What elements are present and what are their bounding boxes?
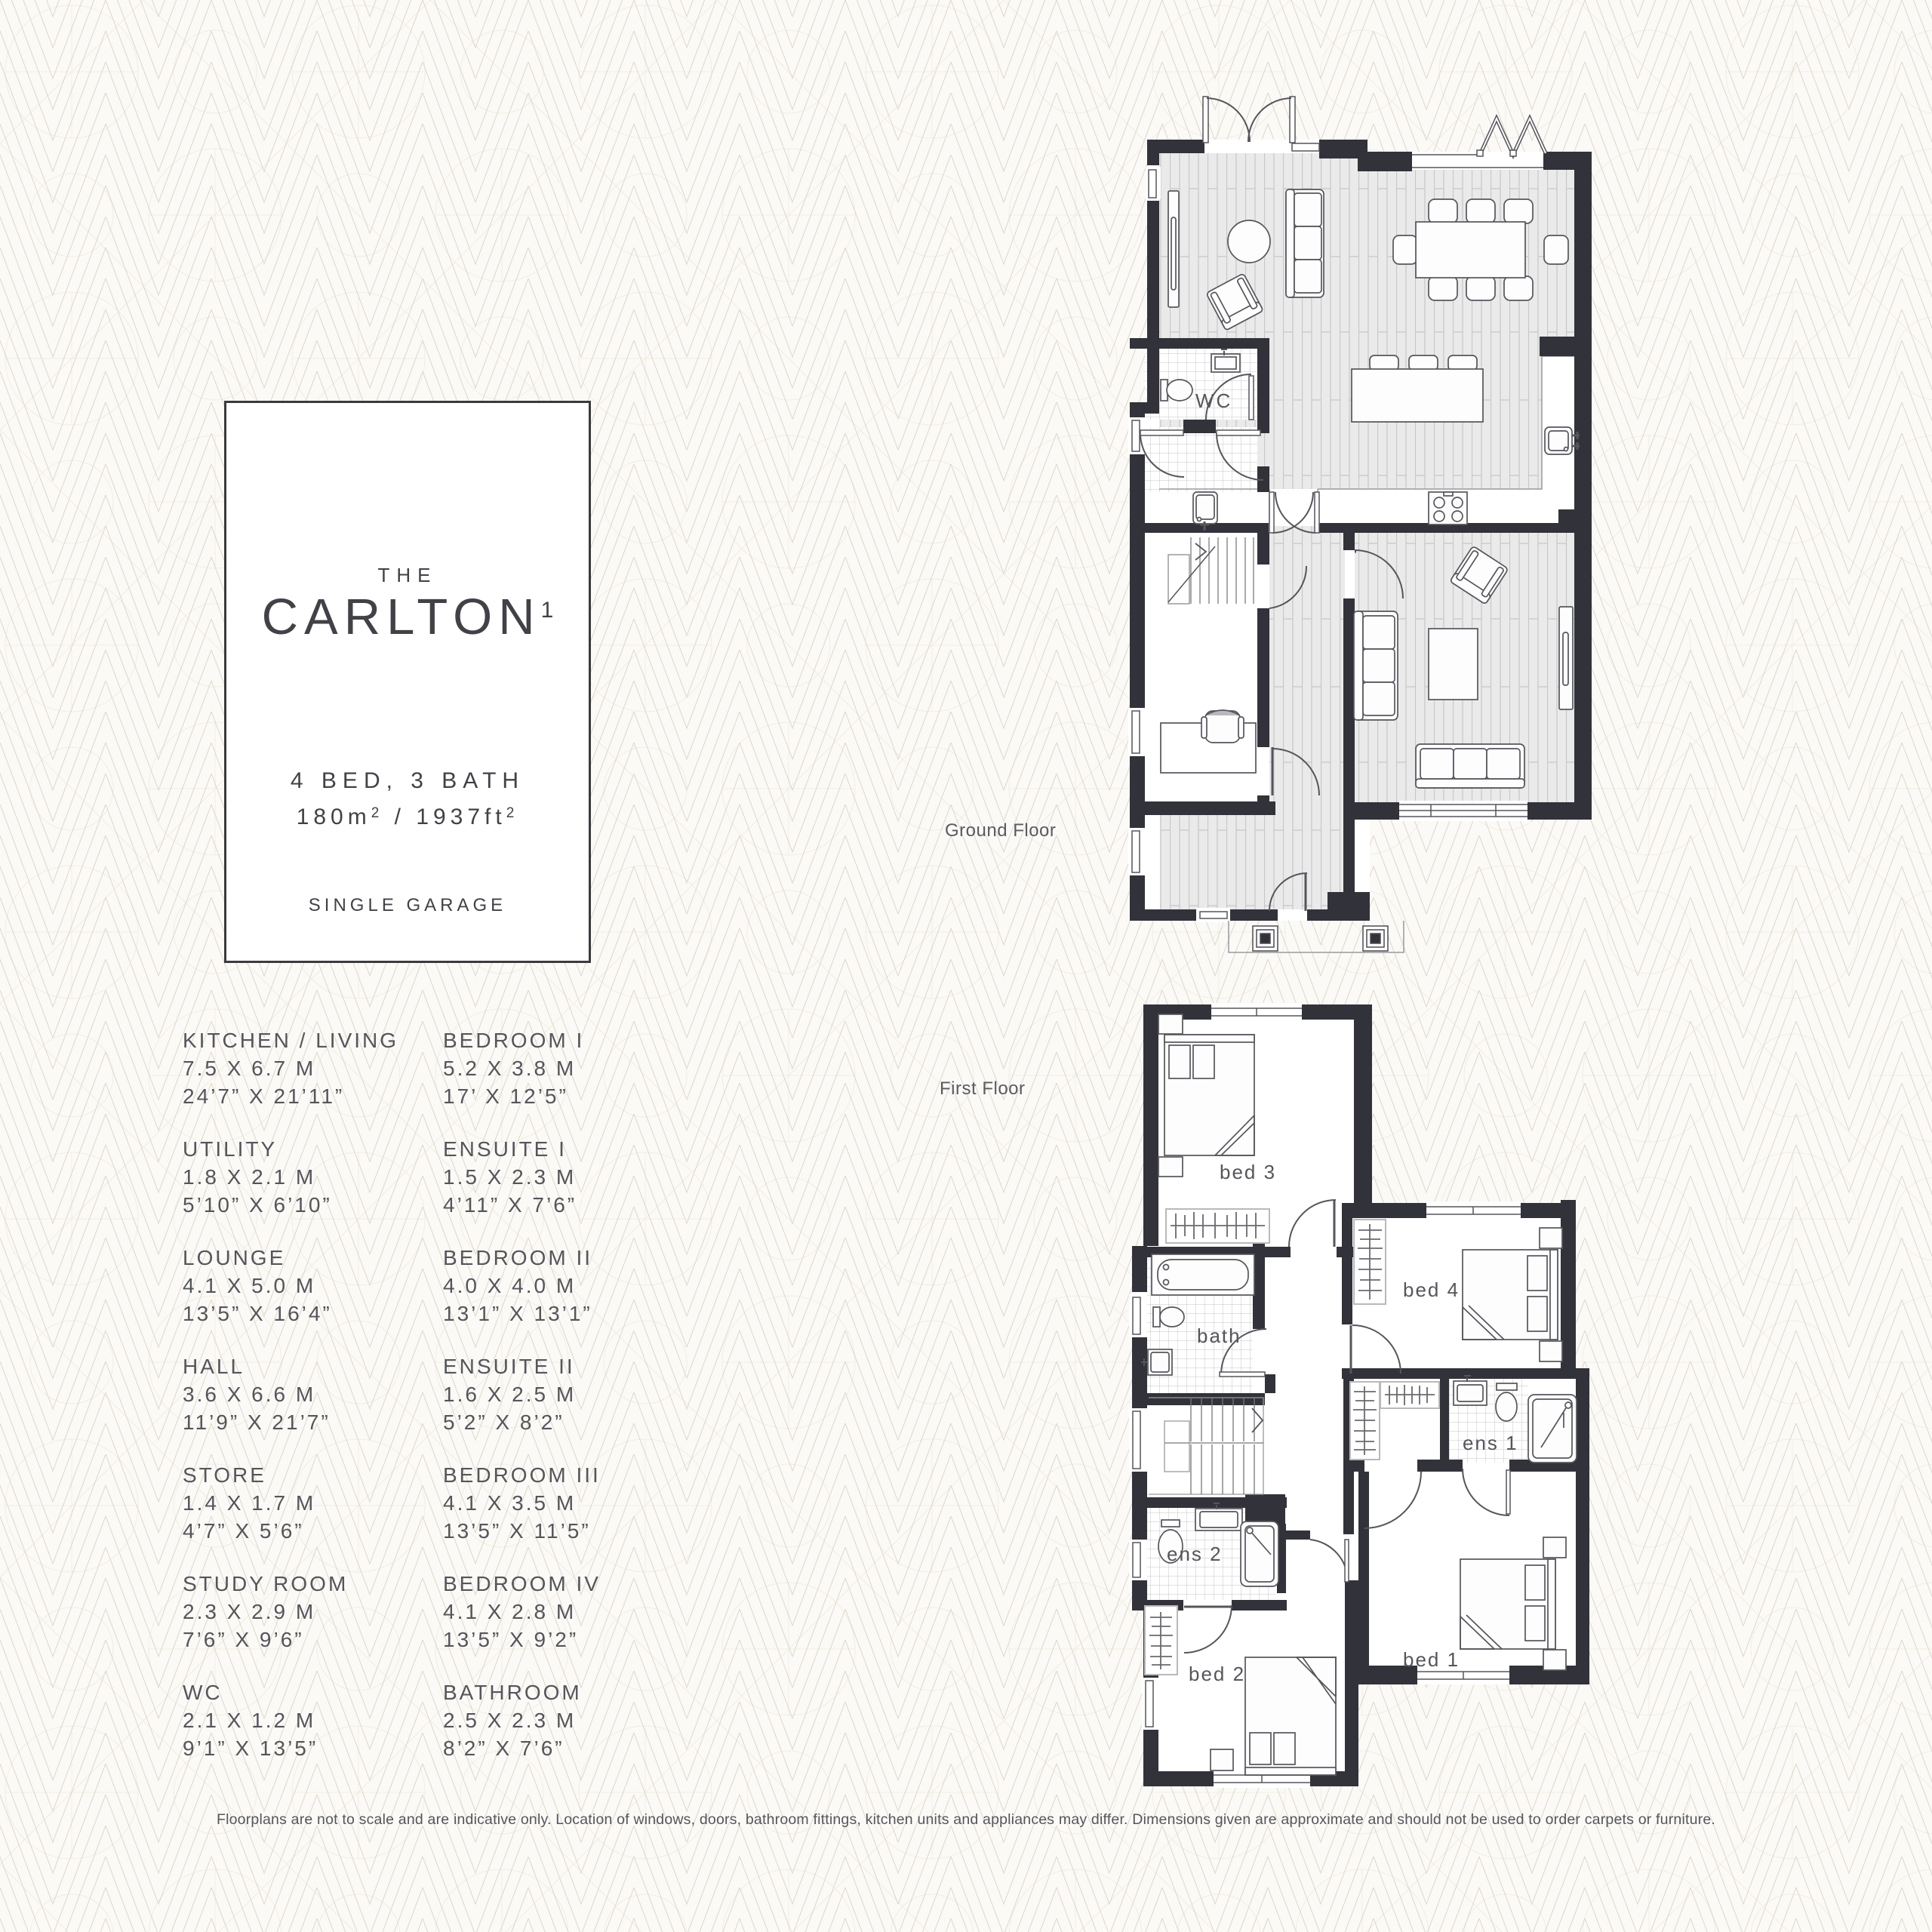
svg-text:WC: WC: [1195, 389, 1232, 412]
svg-text:ens 1: ens 1: [1463, 1432, 1518, 1454]
svg-text:bed 3: bed 3: [1220, 1161, 1276, 1183]
svg-text:ens 2: ens 2: [1167, 1543, 1223, 1565]
svg-text:bed 2: bed 2: [1189, 1663, 1245, 1685]
svg-text:bed 1: bed 1: [1403, 1648, 1460, 1671]
svg-text:bed 4: bed 4: [1403, 1278, 1460, 1301]
svg-text:bath: bath: [1197, 1324, 1241, 1347]
